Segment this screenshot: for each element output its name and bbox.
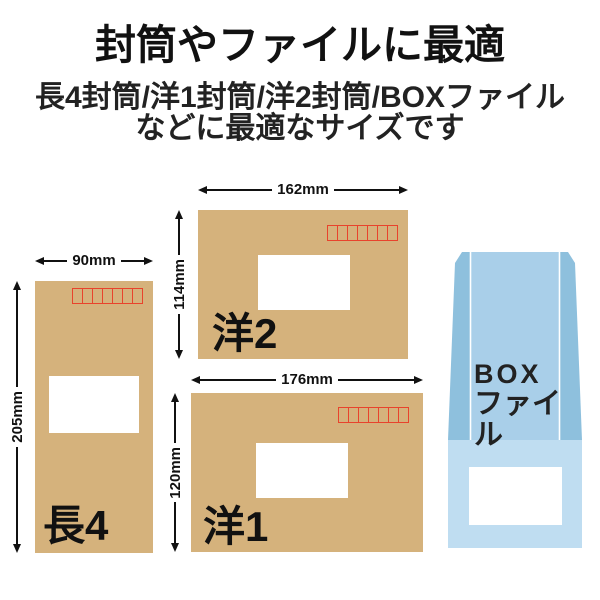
arrow-left-icon xyxy=(191,376,200,384)
postal-code-box xyxy=(398,407,409,423)
arrow-right-icon xyxy=(399,186,408,194)
postal-code-boxes xyxy=(327,225,398,241)
envelope-name: 洋1 xyxy=(203,506,268,548)
subtitle-line-1: 長4封筒/洋1封筒/洋2封筒/BOXファイル xyxy=(0,82,600,113)
dimension-label: 205mm xyxy=(9,387,26,447)
arrow-right-icon xyxy=(144,257,153,265)
product-infographic: 封筒やファイルに最適 長4封筒/洋1封筒/洋2封筒/BOXファイル などに最適な… xyxy=(0,0,600,600)
arrow-up-icon xyxy=(171,393,179,402)
envelope-yo1: 洋1 xyxy=(191,393,423,552)
dimension-yo2-width: 162mm xyxy=(198,183,408,197)
address-window xyxy=(258,255,350,310)
box-file: BOX ファイル xyxy=(448,252,582,548)
box-file-label: BOX ファイル xyxy=(474,360,582,452)
arrow-left-icon xyxy=(35,257,44,265)
postal-code-boxes xyxy=(338,407,409,423)
dimension-label: 114mm xyxy=(171,255,188,314)
dimension-yo2-height: 114mm xyxy=(172,210,186,359)
page-subtitle: 長4封筒/洋1封筒/洋2封筒/BOXファイル などに最適なサイズです xyxy=(0,82,600,144)
dimension-label: 90mm xyxy=(67,254,120,268)
address-window xyxy=(256,443,348,498)
arrow-down-icon xyxy=(175,350,183,359)
envelope-yo2: 洋2 xyxy=(198,210,408,359)
envelope-name: 洋2 xyxy=(212,313,277,355)
dimension-label: 162mm xyxy=(272,183,334,197)
arrow-up-icon xyxy=(13,281,21,290)
envelope-naga4: 長4 xyxy=(35,281,153,553)
address-window xyxy=(49,376,139,433)
box-file-label-line2: ファイル xyxy=(474,389,582,452)
dimension-label: 120mm xyxy=(167,443,184,503)
dimension-naga4-height: 205mm xyxy=(10,281,24,553)
arrow-up-icon xyxy=(175,210,183,219)
arrow-down-icon xyxy=(13,544,21,553)
subtitle-line-2: などに最適なサイズです xyxy=(0,113,600,144)
postal-code-box xyxy=(132,288,143,304)
dimension-label: 176mm xyxy=(276,373,338,387)
envelope-name: 長4 xyxy=(43,505,108,547)
dimension-yo1-height: 120mm xyxy=(168,393,182,552)
arrow-down-icon xyxy=(171,543,179,552)
page-title: 封筒やファイルに最適 xyxy=(0,22,600,68)
box-file-label-line1: BOX xyxy=(474,360,582,389)
dimension-yo1-width: 176mm xyxy=(191,373,423,387)
postal-code-box xyxy=(387,225,398,241)
postal-code-boxes xyxy=(72,288,143,304)
dimension-naga4-width: 90mm xyxy=(35,254,153,268)
arrow-left-icon xyxy=(198,186,207,194)
arrow-right-icon xyxy=(414,376,423,384)
